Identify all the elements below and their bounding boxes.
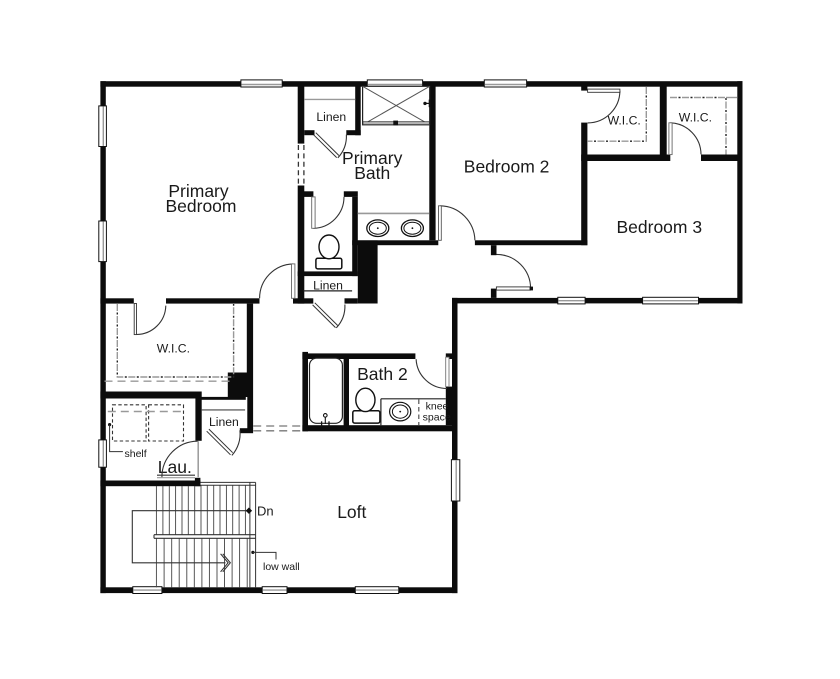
svg-text:Bedroom 2: Bedroom 2 — [464, 156, 550, 176]
svg-text:shelf: shelf — [125, 448, 147, 460]
svg-text:knee: knee — [426, 400, 449, 412]
svg-text:Bedroom: Bedroom — [165, 196, 236, 216]
svg-text:Linen: Linen — [313, 278, 343, 292]
svg-text:Linen: Linen — [209, 415, 239, 429]
svg-text:low wall: low wall — [263, 561, 300, 573]
svg-text:Dn: Dn — [257, 503, 274, 518]
svg-text:Bath: Bath — [354, 163, 390, 183]
svg-text:Bath 2: Bath 2 — [357, 364, 408, 384]
svg-text:W.I.C.: W.I.C. — [608, 113, 641, 127]
svg-text:Bedroom 3: Bedroom 3 — [616, 217, 702, 237]
svg-text:W.I.C.: W.I.C. — [157, 342, 190, 356]
svg-text:space: space — [423, 412, 451, 424]
svg-text:Loft: Loft — [337, 502, 366, 522]
svg-text:W.I.C.: W.I.C. — [679, 110, 712, 124]
svg-text:Linen: Linen — [316, 110, 346, 124]
